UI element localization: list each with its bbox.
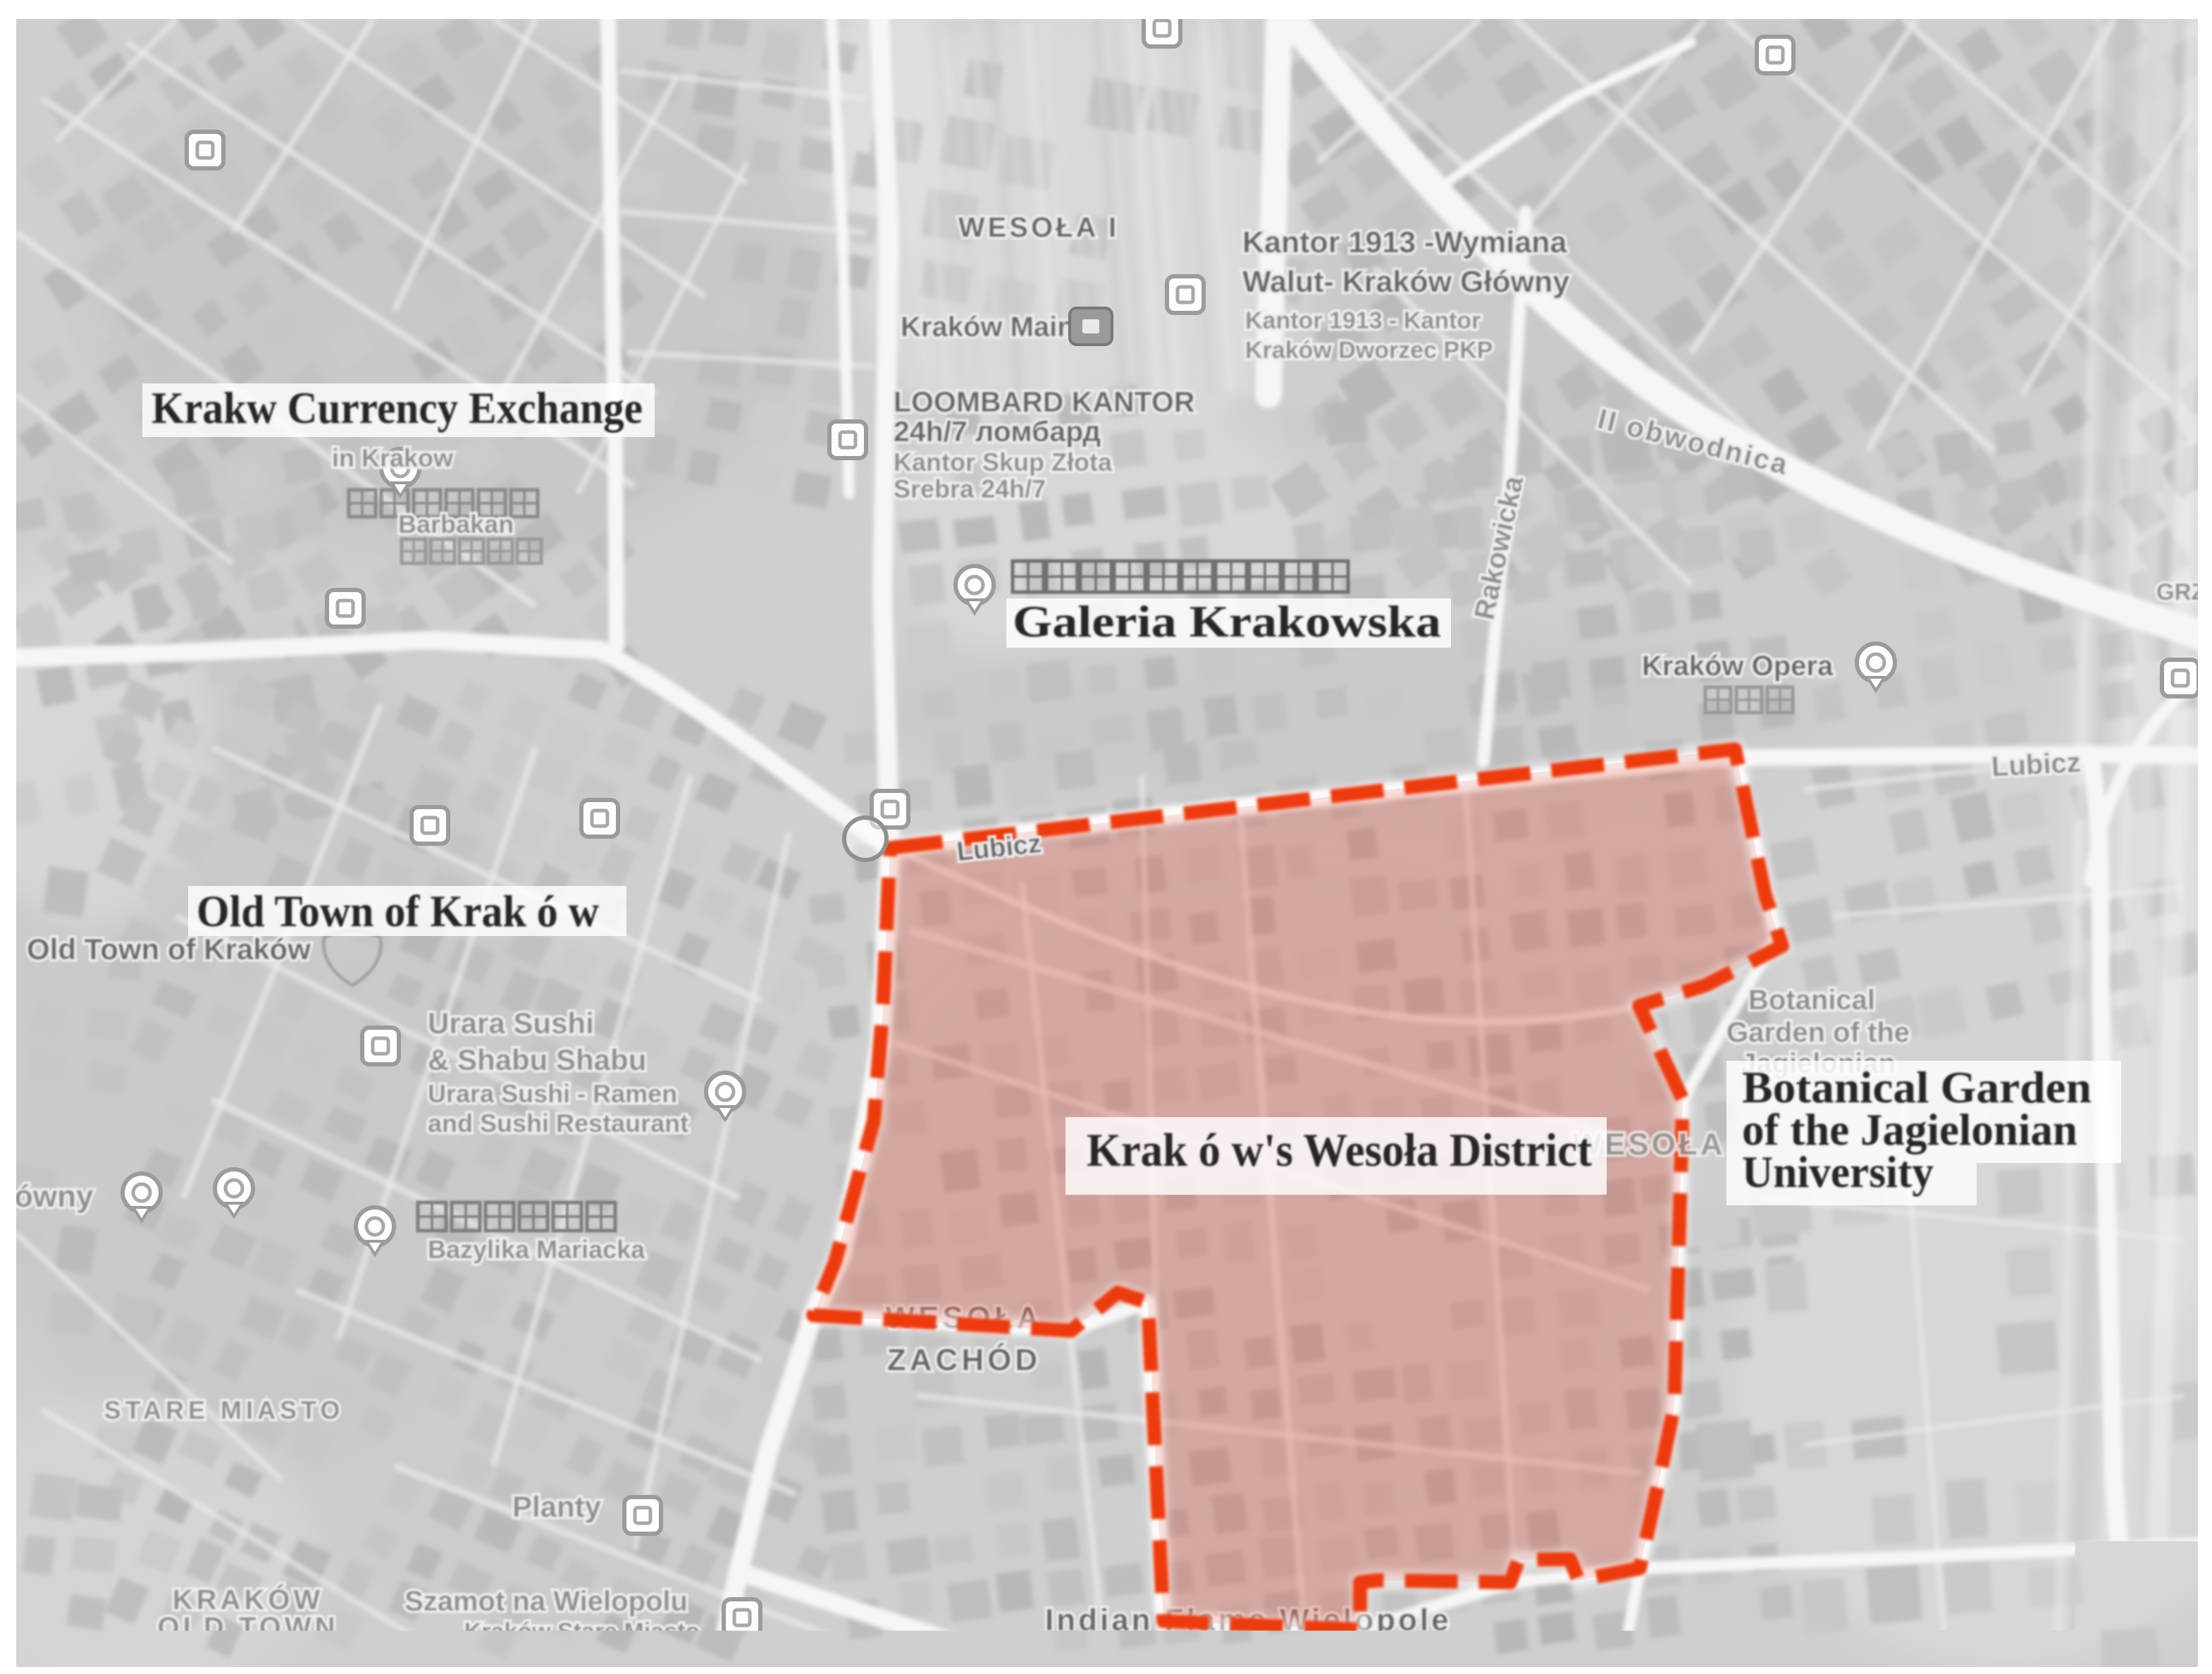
svg-text:Kraków Opera: Kraków Opera: [1642, 651, 1834, 682]
svg-text:Galeria Krakowska: Galeria Krakowska: [1013, 596, 1441, 646]
svg-text:Kraków Stare Miasto: Kraków Stare Miasto: [464, 1618, 700, 1645]
svg-text:Botanical: Botanical: [1748, 985, 1875, 1016]
svg-text:Walut- Kraków Główny: Walut- Kraków Główny: [1242, 265, 1569, 299]
svg-text:Kantor Skup Złota: Kantor Skup Złota: [894, 448, 1113, 476]
svg-text:LOOMBARD KANTOR: LOOMBARD KANTOR: [894, 386, 1194, 418]
svg-text:Srebra 24h/7: Srebra 24h/7: [894, 474, 1046, 503]
svg-text:in Krakow: in Krakow: [332, 443, 454, 472]
svg-text:Kantor 1913 -Wymiana: Kantor 1913 -Wymiana: [1242, 226, 1568, 259]
svg-text:ówny: ówny: [14, 1179, 94, 1214]
svg-text:ZACHÓD: ZACHÓD: [887, 1342, 1041, 1377]
svg-text:WESOŁA I: WESOŁA I: [958, 212, 1119, 243]
svg-text:STARE MIASTO: STARE MIASTO: [104, 1396, 345, 1424]
svg-text:Szamot na Wielopolu: Szamot na Wielopolu: [404, 1586, 688, 1617]
svg-text:Kantor 1913 - Kantor: Kantor 1913 - Kantor: [1245, 307, 1481, 334]
svg-text:and Sushi Restaurant: and Sushi Restaurant: [428, 1109, 688, 1138]
svg-text:24h/7 ломбард: 24h/7 ломбард: [894, 415, 1101, 448]
svg-text:Urara Sushi: Urara Sushi: [428, 1007, 594, 1040]
svg-text:Lubicz: Lubicz: [1991, 747, 2082, 783]
svg-text:Krakw Currency Exchange: Krakw Currency Exchange: [152, 383, 643, 433]
svg-text:University: University: [1742, 1147, 1934, 1197]
svg-text:Kraków Main: Kraków Main: [901, 312, 1075, 343]
svg-text:Urara Sushi - Ramen: Urara Sushi - Ramen: [428, 1079, 677, 1108]
svg-text:Bazylika Mariacka: Bazylika Mariacka: [428, 1235, 645, 1264]
svg-text:OLD TOWN: OLD TOWN: [157, 1612, 338, 1643]
svg-text:Old Town of Krak ó w: Old Town of Krak ó w: [197, 886, 599, 936]
svg-text:Garden of the: Garden of the: [1726, 1017, 1910, 1048]
svg-text:KRAKÓW: KRAKÓW: [173, 1583, 323, 1615]
svg-text:& Shabu Shabu: & Shabu Shabu: [428, 1043, 646, 1076]
svg-text:Barbakan: Barbakan: [398, 510, 514, 538]
svg-text:Krak ó w's Wesoła District: Krak ó w's Wesoła District: [1087, 1124, 1593, 1176]
svg-text:Planty: Planty: [512, 1490, 602, 1523]
svg-text:Old Town of Kraków: Old Town of Kraków: [27, 933, 311, 966]
svg-text:Kraków Dworzec PKP: Kraków Dworzec PKP: [1245, 337, 1493, 364]
